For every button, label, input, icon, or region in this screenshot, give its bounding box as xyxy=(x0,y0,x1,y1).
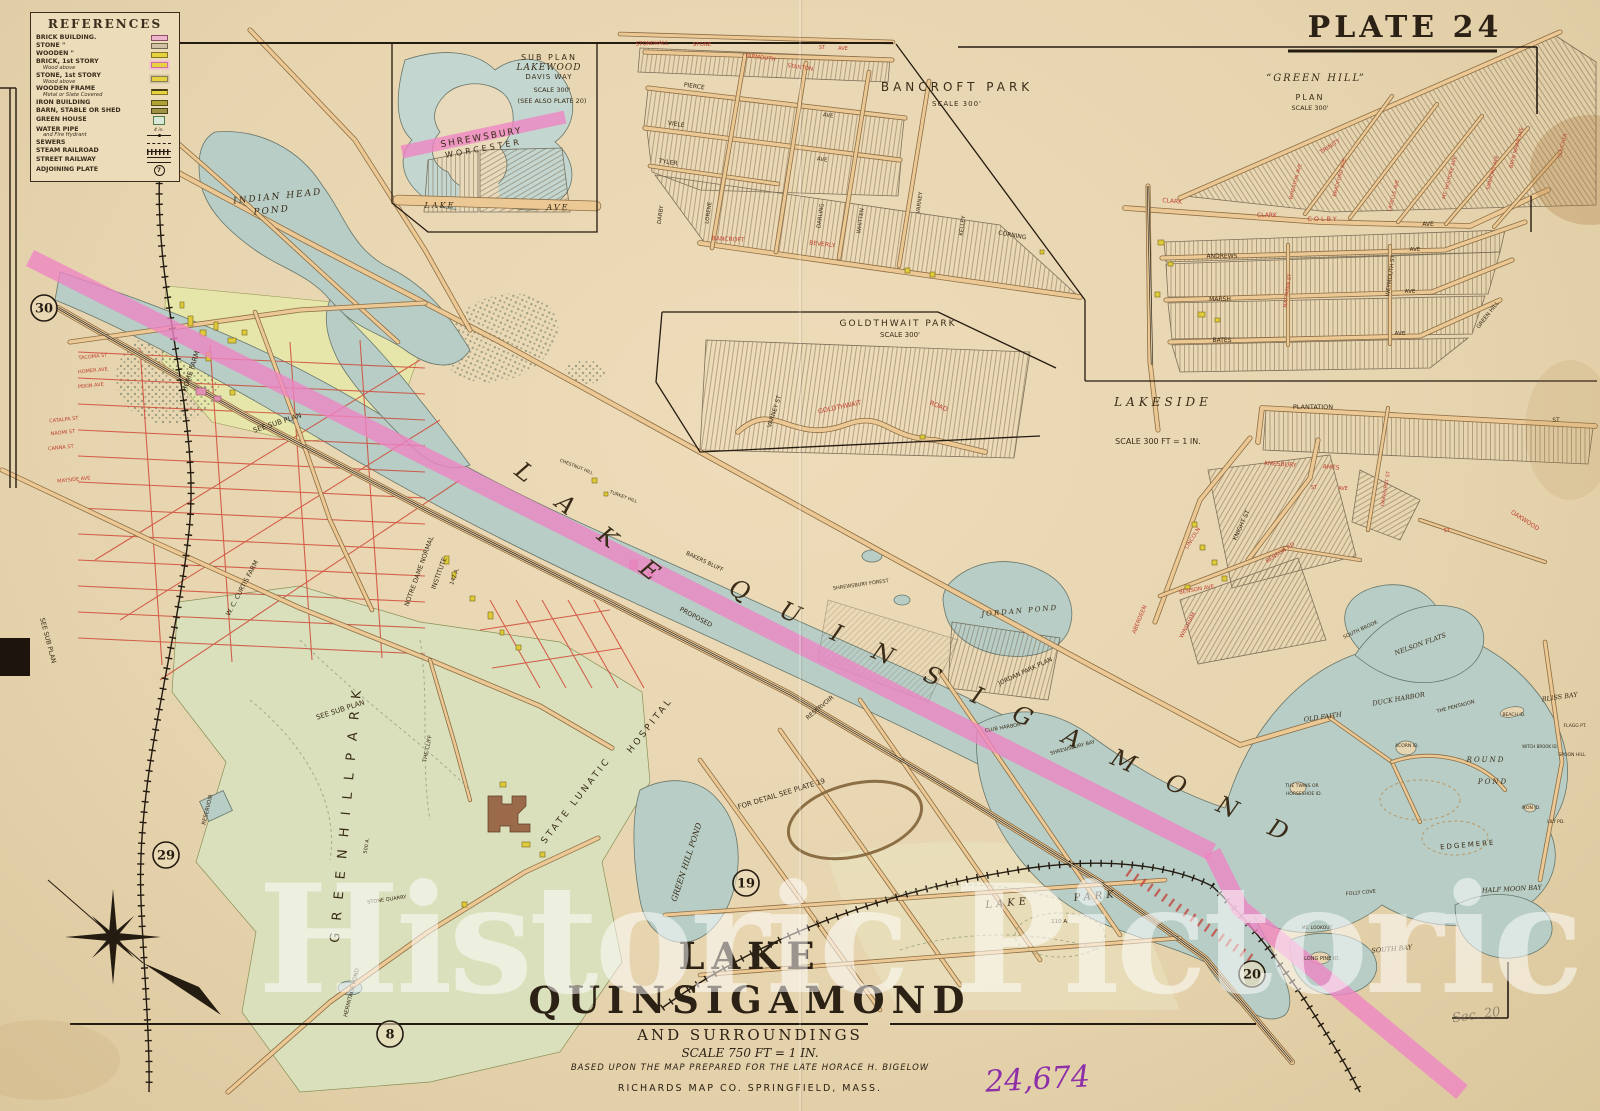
map-label: LAKEWOOD xyxy=(516,63,582,73)
map-label: CLARK xyxy=(1162,197,1183,206)
building xyxy=(1168,262,1173,266)
map-label: ST xyxy=(1444,528,1451,534)
legend-title: REFERENCES xyxy=(36,17,174,31)
map-label: THE TWINS OR xyxy=(1284,783,1318,789)
building xyxy=(592,478,597,483)
map-label: MAYSIDE AVE xyxy=(57,475,91,484)
map-label: NAOMI ST xyxy=(50,429,76,438)
map-label: ACORN ID. xyxy=(1395,743,1419,749)
legend-item-swatch-waterpipe-icon: 4 in. xyxy=(144,129,174,136)
adjoining-plate-number: 29 xyxy=(157,849,175,864)
map-label: ST xyxy=(819,45,826,51)
legend-item: ADJOINING PLATE7 xyxy=(36,165,174,176)
legend-item-label: BARN, STABLE OR SHED xyxy=(36,108,121,115)
legend-item-label: WATER PIPEand Fire Hydrant xyxy=(36,127,87,139)
map-title-block: LAKE QUINSIGAMOND AND SURROUNDINGS SCALE… xyxy=(510,934,990,1094)
map-label: HORSESHOE ID. xyxy=(1286,791,1322,797)
building xyxy=(214,322,218,330)
building xyxy=(1040,250,1044,254)
map-label: 147 A. xyxy=(449,567,461,586)
map-label: POND xyxy=(1477,778,1508,786)
building xyxy=(500,782,506,787)
map-label: VARNEY xyxy=(916,191,925,214)
legend-item-label: STONE, 1st STORYWood above xyxy=(36,73,101,85)
map-label: FLAGG PT. xyxy=(1564,723,1587,729)
legend-item: WOODEN " xyxy=(36,51,174,58)
legend-item: STEAM RAILROAD xyxy=(36,148,174,155)
legend-item-label: BRICK BUILDING. xyxy=(36,35,96,42)
map-label: ST xyxy=(1311,485,1318,491)
map-label: BEACH ID. xyxy=(1502,712,1525,718)
adjoining-plate-marker: 30 xyxy=(31,295,57,321)
building xyxy=(470,596,475,601)
atlas-plate-map: SUB PLANLAKEWOODDAVIS WAYSCALE 300'(SEE … xyxy=(0,0,1600,1111)
map-label: CATALPA ST xyxy=(49,415,80,424)
map-label: SCALE 300' xyxy=(533,86,570,94)
adjoining-plate-marker: 29 xyxy=(153,842,179,868)
building xyxy=(1215,318,1220,322)
legend-item-label: IRON BUILDING xyxy=(36,100,90,107)
building xyxy=(930,272,935,277)
adjoining-plate-marker: 8 xyxy=(377,1021,403,1047)
map-label: ROUND xyxy=(1466,756,1506,764)
legend-item: BARN, STABLE OR SHED xyxy=(36,108,174,115)
map-label: LAKE xyxy=(424,201,456,210)
legend-item-label: STEAM RAILROAD xyxy=(36,148,99,155)
map-label: STONEHALL xyxy=(635,40,669,47)
legend-references: REFERENCES BRICK BUILDING.STONE "WOODEN … xyxy=(30,12,180,182)
map-label: TURKEY HILL xyxy=(608,489,639,505)
small-pond xyxy=(894,595,910,605)
legend-item: BRICK BUILDING. xyxy=(36,35,174,42)
map-label: PLANTATION xyxy=(1293,403,1333,411)
legend-item-label: ADJOINING PLATE xyxy=(36,167,98,174)
map-label: MARSH xyxy=(1209,296,1231,303)
plate-number-title: PLATE 24 xyxy=(1290,10,1520,45)
map-label: AVE xyxy=(1410,247,1421,253)
map-label: AVE xyxy=(1405,289,1416,295)
map-label: INSTITUTE xyxy=(430,556,449,590)
handwritten-number: 24,674 xyxy=(984,1059,1091,1099)
legend-item-swatch-iron-icon xyxy=(144,100,174,106)
map-label: SCALE 300 FT = 1 IN. xyxy=(1115,437,1201,446)
map-label: AVE xyxy=(1338,486,1348,492)
legend-item-label: STONE " xyxy=(36,43,65,50)
map-credit: BASED UPON THE MAP PREPARED FOR THE LATE… xyxy=(510,1063,990,1073)
map-label: IRON ID. xyxy=(1521,805,1540,811)
building xyxy=(1212,560,1217,565)
map-label: SOUTH BAY xyxy=(1371,943,1413,955)
map-label: DAVIS WAY xyxy=(525,73,572,81)
map-label: BATES xyxy=(1212,337,1231,344)
map-label: STONE xyxy=(693,42,712,48)
building xyxy=(1200,545,1205,550)
map-label: ABERDEEN xyxy=(1132,605,1149,635)
legend-item: SEWERS xyxy=(36,140,174,147)
legend-item-swatch-stone1-icon xyxy=(144,76,174,82)
building xyxy=(1158,240,1164,245)
legend-item: WOODEN FRAMEMetal or Slate Covered xyxy=(36,86,174,98)
adjoining-plate-marker: 19 xyxy=(733,870,759,896)
adjoining-plate-marker: 20 xyxy=(1239,961,1265,987)
legend-item-swatch-stone-icon xyxy=(144,43,174,49)
building xyxy=(604,492,608,496)
legend-item-label: SEWERS xyxy=(36,140,65,147)
adjoining-plate-number: 19 xyxy=(737,877,755,892)
legend-item-swatch-woodframe-icon xyxy=(144,89,174,95)
legend-item-label: BRICK, 1st STORYWood above xyxy=(36,59,99,71)
map-label: SHREWSBURY FOREST xyxy=(833,578,890,592)
legend-item-swatch-wood-icon xyxy=(144,52,174,58)
map-publisher: RICHARDS MAP CO. SPRINGFIELD, MASS. xyxy=(510,1083,990,1094)
legend-item-label: WOODEN " xyxy=(36,51,74,58)
map-label: HOMER AVE xyxy=(78,366,108,375)
map-label: AVE xyxy=(546,203,570,212)
adjoining-plate-number: 30 xyxy=(35,302,53,317)
legend-item-swatch-brick-icon xyxy=(144,35,174,41)
building xyxy=(228,338,236,343)
building xyxy=(462,902,467,907)
building xyxy=(214,396,221,401)
building xyxy=(242,330,247,335)
legend-item: GREEN HOUSE xyxy=(36,116,174,125)
legend-item-swatch-plate-icon: 7 xyxy=(144,165,174,176)
map-label: (SEE ALSO PLATE 20) xyxy=(518,97,587,105)
map-label: LAKESIDE xyxy=(1113,395,1212,409)
map-subtitle: AND SURROUNDINGS xyxy=(510,1026,990,1044)
map-label: AVE xyxy=(838,46,848,52)
adjoining-plate-number: 8 xyxy=(385,1028,394,1043)
building xyxy=(500,630,504,635)
map-label: AVE xyxy=(1422,221,1434,228)
legend-item: IRON BUILDING xyxy=(36,100,174,107)
legend-item: STREET RAILWAY xyxy=(36,157,174,164)
map-label: AVE xyxy=(1395,331,1406,337)
map-label: SEE SUB PLAN xyxy=(38,617,58,664)
building xyxy=(230,390,235,395)
map-label: WITCH BROOK ID. xyxy=(1522,744,1558,749)
building xyxy=(180,302,184,308)
map-label: AMES xyxy=(1322,463,1340,471)
legend-item-label: GREEN HOUSE xyxy=(36,117,87,124)
building xyxy=(920,435,925,439)
legend-item-swatch-brick1-icon xyxy=(144,62,174,68)
adjoining-plate-block xyxy=(0,638,30,676)
map-label: 110 A. xyxy=(1051,919,1069,925)
legend-item: STONE " xyxy=(36,43,174,50)
building xyxy=(1198,312,1205,317)
building xyxy=(522,842,530,847)
map-label: TACOMA ST xyxy=(77,352,108,361)
legend-item-swatch-greenhouse-icon xyxy=(144,116,174,125)
legend-item-label: STREET RAILWAY xyxy=(36,157,96,164)
map-label: CHESTNUT HILL xyxy=(559,458,595,477)
map-label: SPOON HILL xyxy=(1558,752,1586,758)
map-label: BANCROFT PARK xyxy=(881,80,1033,94)
building xyxy=(905,268,910,273)
legend-item-swatch-sewer-icon xyxy=(144,143,174,144)
compass-rose xyxy=(48,880,221,1015)
map-label: PEKIN AVE xyxy=(78,382,104,391)
map-label: BAKERS BLUFF xyxy=(685,551,724,574)
legend-item-swatch-streetrail-icon xyxy=(144,157,174,163)
map-label: LILY PD. xyxy=(1547,819,1565,825)
building xyxy=(488,612,493,619)
map-label: SUB PLAN xyxy=(521,53,577,62)
map-label: SCALE 300' xyxy=(932,100,982,108)
map-label: BLISS BAY xyxy=(1540,690,1578,703)
legend-item-swatch-railroad-icon xyxy=(144,149,174,155)
map-label: DARBY xyxy=(657,205,666,225)
map-label: COLBY xyxy=(1307,215,1338,223)
map-label: LONG PINE ID. xyxy=(1304,956,1340,962)
map-label: FOR DETAIL SEE PLATE 19 xyxy=(737,777,826,811)
map-label: SCALE 300' xyxy=(1291,104,1328,112)
adjoining-plate-number: 20 xyxy=(1243,968,1261,983)
map-title: LAKE QUINSIGAMOND xyxy=(510,934,990,1022)
building xyxy=(196,388,206,395)
map-label: PLAN xyxy=(1296,93,1325,102)
map-label: OAKWOOD xyxy=(1509,509,1540,533)
map-label: CANNA ST xyxy=(48,444,75,453)
map-label: SCALE 300' xyxy=(880,331,920,339)
legend-item: WATER PIPEand Fire Hydrant4 in. xyxy=(36,127,174,139)
legend-item-label: WOODEN FRAMEMetal or Slate Covered xyxy=(36,86,102,98)
half-moon-bay-water xyxy=(1455,895,1552,959)
legend-item: STONE, 1st STORYWood above xyxy=(36,73,174,85)
map-label: ANDREWS xyxy=(1207,253,1238,260)
map-label: NOTRE DAME NORMAL xyxy=(403,535,436,608)
building xyxy=(188,316,193,326)
map-scale: SCALE 750 FT = 1 IN. xyxy=(510,1046,990,1060)
map-label: GOLDTHWAIT PARK xyxy=(839,319,956,329)
legend-item-swatch-barn-icon xyxy=(144,108,174,114)
building xyxy=(540,852,545,857)
map-label: “GREEN HILL” xyxy=(1266,73,1366,84)
map-label: CLARK xyxy=(1257,212,1278,219)
legend-item: BRICK, 1st STORYWood above xyxy=(36,59,174,71)
building xyxy=(1222,576,1227,581)
map-label: MT. LOOKOUT xyxy=(1302,925,1333,931)
building xyxy=(516,645,521,650)
building xyxy=(1155,292,1160,297)
